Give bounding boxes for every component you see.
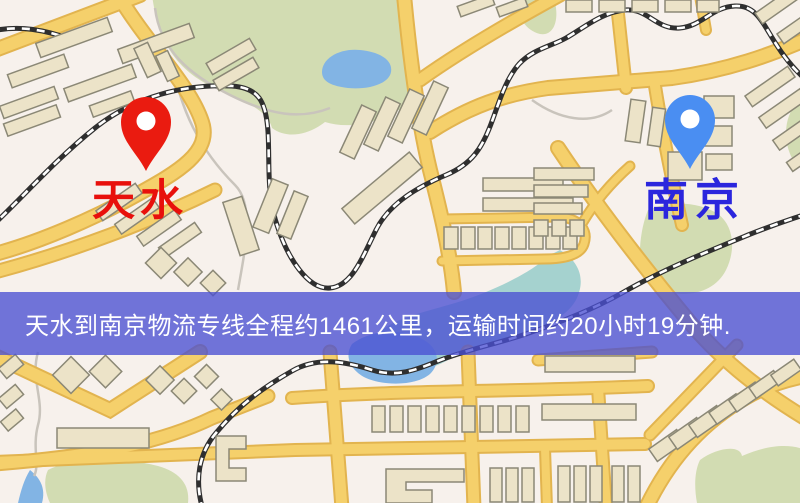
map-building [599,0,625,12]
road [545,448,547,503]
route-info-text: 天水到南京物流专线全程约1461公里，运输时间约20小时19分钟. [25,306,731,341]
map-building [390,406,403,432]
park-area [695,446,800,503]
origin-pin-hole [137,112,156,131]
map-building [545,356,635,372]
map-building [566,0,592,12]
map-building [534,220,548,236]
map-building [426,406,439,432]
map-building [534,168,594,180]
map-building [590,466,602,502]
map-screenshot: 天水 南京 天水到南京物流专线全程约1461公里，运输时间约20小时19分钟. [0,0,800,503]
map-building [574,466,586,502]
route-info-banner: 天水到南京物流专线全程约1461公里，运输时间约20小时19分钟. [0,292,800,355]
map-building [480,406,493,432]
destination-pin-hole [681,110,700,129]
map-building [408,406,421,432]
map-building [552,220,566,236]
map-building [372,406,385,432]
map-building [506,468,518,502]
map-building [665,0,691,12]
map-building [57,428,149,448]
map-building [570,220,584,236]
map-building [478,227,492,249]
map-building [706,154,732,170]
map-building [516,406,529,432]
map-building [697,0,719,12]
map-building [444,406,457,432]
map-building [558,466,570,502]
map-building [534,203,582,214]
map-building [628,466,640,502]
destination-city-label: 南京 [644,179,746,223]
map-building [444,227,458,249]
map-building [534,185,588,197]
map-building [522,468,534,502]
origin-city-label: 天水 [92,180,188,223]
map-building [632,0,658,12]
map-building [490,468,502,502]
map-building [498,406,511,432]
map-building [512,227,526,249]
map-building [542,404,636,420]
map-building [612,466,624,502]
map-building [495,227,509,249]
map-building [461,227,475,249]
map-building [462,406,475,432]
map-canvas[interactable] [0,0,800,503]
